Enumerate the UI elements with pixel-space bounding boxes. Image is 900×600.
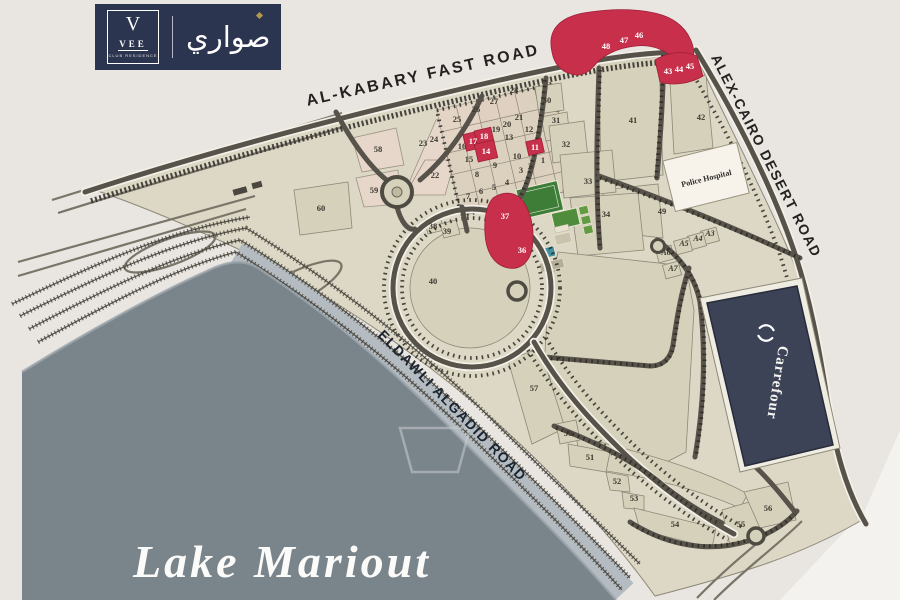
plot-label-11: 11 (531, 142, 539, 152)
plot-label-12: 12 (525, 124, 534, 134)
plot-label-5: 5 (492, 182, 496, 192)
plot-label-21: 21 (515, 112, 524, 122)
plot-label-54: 54 (671, 519, 680, 529)
plot-label-15: 15 (465, 154, 474, 164)
plot-42[interactable] (670, 75, 713, 154)
plot-label-44: 44 (675, 64, 684, 74)
plot-label-2: 2 (528, 161, 532, 171)
plot-label-20: 20 (503, 119, 512, 129)
plot-label-32: 32 (562, 139, 571, 149)
plot-label-34: 34 (602, 209, 611, 219)
plot-label-58: 58 (374, 144, 383, 154)
logo-divider (172, 16, 173, 58)
plot-label-55: 55 (737, 519, 746, 529)
plot-label-A3: A3 (704, 229, 714, 238)
plot-label-1: 1 (541, 155, 545, 165)
plot-label-23: 23 (419, 138, 428, 148)
plot-label-52: 52 (613, 476, 622, 486)
plot-label-42: 42 (697, 112, 706, 122)
vee-subtitle: CLUB RESIDENCE (108, 53, 158, 58)
plot-label-50: 50 (564, 428, 573, 438)
plot-label-18: 18 (480, 131, 489, 141)
plot-label-43: 43 (664, 66, 673, 76)
plot-label-28: 28 (510, 85, 519, 95)
plot-label-13: 13 (505, 132, 514, 142)
plot-label-51: 51 (586, 452, 595, 462)
plot-label-19: 19 (492, 124, 501, 134)
plot-label-39: 39 (443, 226, 452, 236)
plot-label-8: 8 (475, 169, 479, 179)
plot-label-25: 25 (453, 114, 462, 124)
plot-label-56: 56 (764, 503, 773, 513)
plot-label-17: 17 (469, 136, 478, 146)
roundabout[interactable] (748, 528, 764, 544)
plot-label-45: 45 (686, 61, 695, 71)
plot-label-16: 16 (458, 141, 467, 151)
plot-label-53: 53 (630, 493, 639, 503)
vee-logo-box: V VEE CLUB RESIDENCE (107, 10, 159, 64)
vee-name: VEE (118, 39, 148, 51)
arabic-brand-name: صواري (186, 7, 270, 67)
plot-label-36: 36 (518, 245, 527, 255)
plot-label-A4: A4 (692, 234, 702, 243)
plot-label-60: 60 (317, 203, 326, 213)
vee-v-mark: V (108, 14, 158, 34)
plot-label-40: 40 (429, 276, 438, 286)
plot-label-47: 47 (620, 35, 629, 45)
plot-label-33: 33 (584, 176, 593, 186)
plot-label-41: 41 (629, 115, 638, 125)
plot-label-49: 49 (658, 206, 667, 216)
plot-34[interactable] (570, 193, 644, 256)
brand-logo: V VEE CLUB RESIDENCE صواري (95, 4, 281, 70)
plot-label-A6: A6 (660, 248, 670, 257)
plot-label-6: 6 (479, 186, 483, 196)
plot-label-3: 3 (519, 165, 523, 175)
roundabout[interactable] (508, 282, 526, 300)
plot-label-59: 59 (370, 185, 379, 195)
plot-label-A5: A5 (678, 239, 688, 248)
plot-label-10: 10 (513, 151, 522, 161)
plot-label-31: 31 (552, 115, 561, 125)
plot-label-27: 27 (490, 96, 499, 106)
plot-label-46: 46 (635, 30, 644, 40)
plot-label-22: 22 (431, 170, 440, 180)
plot-label-26: 26 (472, 104, 481, 114)
plot-label-9: 9 (493, 160, 497, 170)
plot-label-14: 14 (482, 146, 491, 156)
plot-label-30: 30 (543, 95, 552, 105)
lake-label: Lake Mariout (132, 536, 431, 587)
plot-33[interactable] (560, 150, 616, 198)
plot-label-48: 48 (602, 41, 611, 51)
plot-label-A7: A7 (667, 264, 678, 273)
plot-label-24: 24 (430, 134, 439, 144)
plot-label-38: 38 (429, 221, 438, 231)
plot-label-57: 57 (530, 383, 539, 393)
plot-label-37: 37 (501, 211, 510, 221)
masterplan-map: Lake Mariout Police Hospital Carrefour A… (0, 0, 900, 600)
